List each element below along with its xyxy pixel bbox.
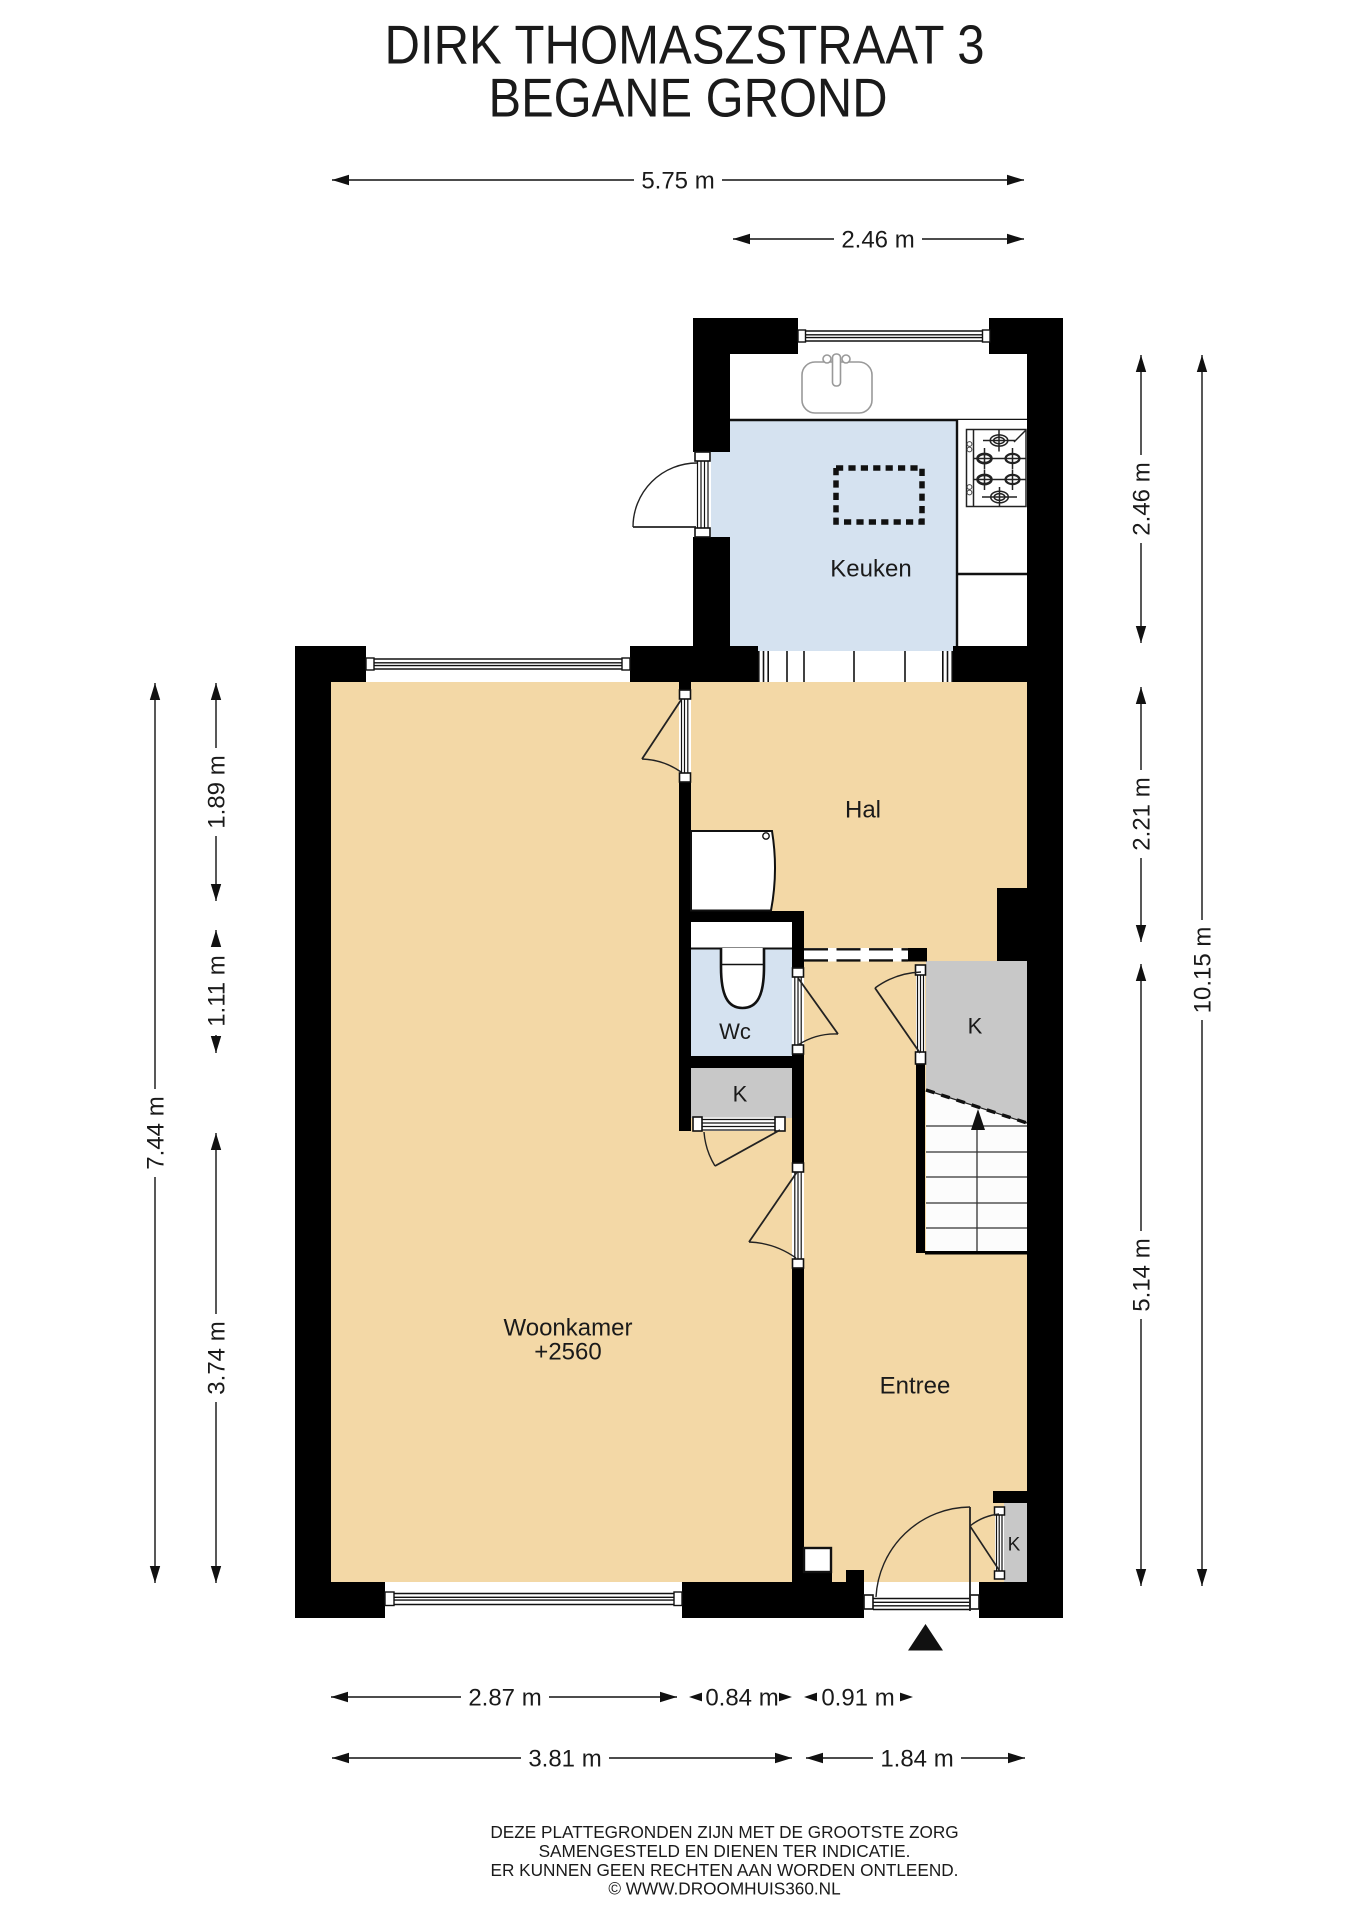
- svg-text:0.84 m: 0.84 m: [705, 1685, 778, 1712]
- svg-text:5.75 m: 5.75 m: [641, 168, 714, 195]
- svg-text:K: K: [968, 1014, 983, 1039]
- svg-text:BEGANE GROND: BEGANE GROND: [489, 67, 888, 129]
- svg-text:10.15 m: 10.15 m: [1190, 927, 1217, 1014]
- svg-text:DEZE PLATTEGRONDEN ZIJN MET DE: DEZE PLATTEGRONDEN ZIJN MET DE GROOTSTE …: [490, 1822, 958, 1842]
- svg-text:Entree: Entree: [880, 1373, 951, 1400]
- svg-text:3.74 m: 3.74 m: [204, 1321, 231, 1394]
- svg-text:Keuken: Keuken: [830, 556, 911, 583]
- svg-text:2.21 m: 2.21 m: [1129, 777, 1156, 850]
- svg-text:K: K: [1008, 1535, 1021, 1556]
- svg-text:2.87 m: 2.87 m: [468, 1685, 541, 1712]
- svg-text:2.46 m: 2.46 m: [841, 227, 914, 254]
- svg-text:Woonkamer: Woonkamer: [504, 1315, 633, 1342]
- svg-text:+2560: +2560: [534, 1339, 601, 1366]
- svg-text:7.44 m: 7.44 m: [143, 1096, 170, 1169]
- svg-text:© WWW.DROOMHUIS360.NL: © WWW.DROOMHUIS360.NL: [608, 1879, 840, 1899]
- svg-text:1.89 m: 1.89 m: [204, 755, 231, 828]
- svg-text:2.46 m: 2.46 m: [1129, 462, 1156, 535]
- svg-text:5.14 m: 5.14 m: [1129, 1238, 1156, 1311]
- svg-text:ER KUNNEN GEEN RECHTEN AAN WOR: ER KUNNEN GEEN RECHTEN AAN WORDEN ONTLEE…: [491, 1860, 959, 1880]
- svg-text:K: K: [733, 1082, 748, 1107]
- svg-text:0.91 m: 0.91 m: [821, 1685, 894, 1712]
- svg-text:SAMENGESTELD EN DIENEN TER IND: SAMENGESTELD EN DIENEN TER INDICATIE.: [539, 1841, 911, 1861]
- svg-text:3.81 m: 3.81 m: [528, 1746, 601, 1773]
- svg-text:Wc: Wc: [719, 1019, 751, 1044]
- svg-text:Hal: Hal: [845, 797, 881, 824]
- svg-text:1.84 m: 1.84 m: [880, 1746, 953, 1773]
- svg-text:1.11 m: 1.11 m: [204, 955, 231, 1027]
